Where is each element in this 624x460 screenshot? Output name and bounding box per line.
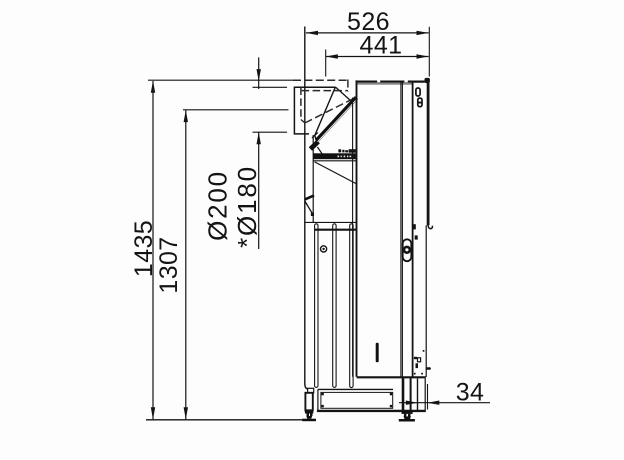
svg-text:1307: 1307 xyxy=(155,236,183,293)
svg-text:441: 441 xyxy=(360,31,403,59)
svg-text:*Ø180: *Ø180 xyxy=(232,165,262,248)
svg-text:Ø200: Ø200 xyxy=(202,170,232,241)
